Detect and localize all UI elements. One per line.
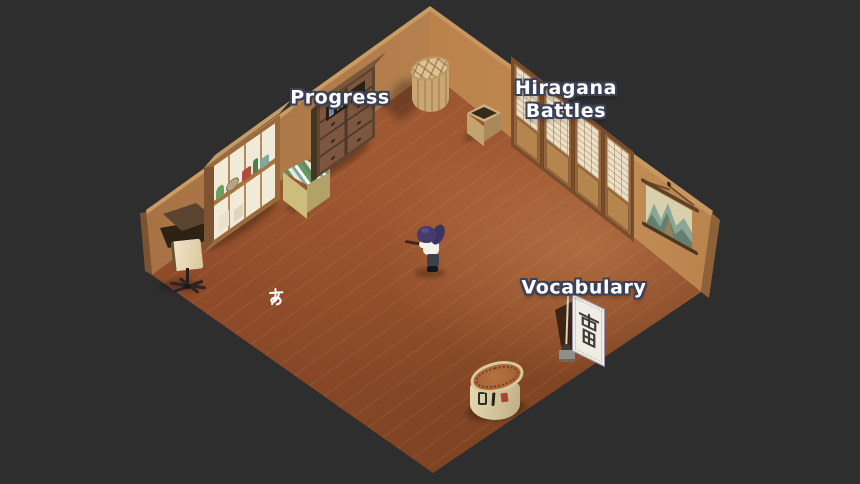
player-pants	[427, 254, 439, 266]
player-hair-highlight	[421, 228, 429, 233]
shelf-white-stack	[218, 209, 229, 233]
shoji-door	[604, 131, 632, 237]
shelf-white-stack	[234, 204, 243, 222]
lantern-paper-shade	[171, 239, 204, 272]
lantern-base-hub	[184, 284, 191, 289]
drum-marking	[478, 392, 487, 405]
shelf-pot	[226, 174, 239, 194]
progress-station-label[interactable]: Progress	[290, 87, 390, 110]
banner-base	[559, 350, 575, 362]
hiragana-a-icon	[266, 286, 286, 308]
shelf-red-bowls	[242, 165, 251, 182]
banner-flag	[572, 293, 605, 367]
taiko-drum	[462, 362, 532, 426]
hiragana-battles-label-line2: Battles	[515, 100, 617, 123]
drum-red-seal	[500, 393, 508, 403]
hiragana-battles-station-label[interactable]: Hiragana Battles	[515, 77, 617, 123]
shelf-green-bottle	[253, 157, 258, 175]
hiragana-battles-label-line1: Hiragana	[515, 77, 617, 100]
vocabulary-banner[interactable]	[545, 288, 625, 383]
floor-hiragana-a-glyph[interactable]	[266, 286, 286, 308]
vocabulary-station-label[interactable]: Vocabulary	[521, 277, 646, 300]
game-scene: Progress Hiragana Battles Vocabulary	[0, 0, 860, 484]
player-shoes	[427, 266, 438, 272]
shoji-door	[574, 108, 602, 214]
shelf-teal-box	[260, 153, 269, 169]
shelf-plant	[216, 183, 224, 201]
player-character[interactable]	[403, 224, 451, 278]
